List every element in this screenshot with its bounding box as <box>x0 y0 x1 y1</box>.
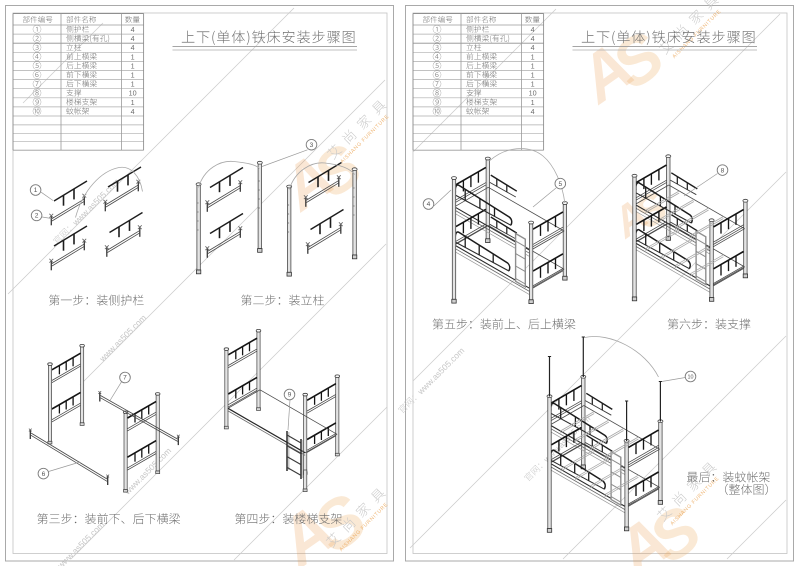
svg-text:1: 1 <box>131 61 135 70</box>
svg-text:1: 1 <box>131 71 135 80</box>
svg-text:4: 4 <box>131 34 135 43</box>
svg-text:4: 4 <box>427 201 431 208</box>
svg-text:5: 5 <box>558 181 562 188</box>
svg-text:10: 10 <box>688 375 694 381</box>
svg-text:7: 7 <box>123 375 127 382</box>
svg-text:2: 2 <box>35 213 39 220</box>
svg-text:3: 3 <box>310 142 314 149</box>
svg-text:10: 10 <box>129 89 137 98</box>
svg-text:1: 1 <box>131 52 135 61</box>
svg-text:4: 4 <box>131 43 135 52</box>
svg-text:6: 6 <box>42 471 46 478</box>
svg-text:8: 8 <box>721 167 725 174</box>
svg-text:4: 4 <box>131 25 135 34</box>
svg-text:1: 1 <box>34 187 38 194</box>
svg-text:1: 1 <box>131 98 135 107</box>
svg-text:9: 9 <box>288 392 292 399</box>
svg-text:1: 1 <box>131 80 135 89</box>
svg-text:4: 4 <box>131 107 135 116</box>
